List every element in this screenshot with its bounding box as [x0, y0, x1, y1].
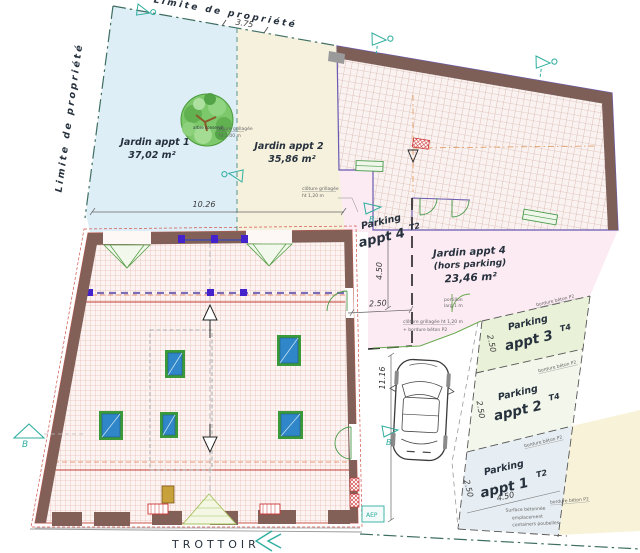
right-wall-gap-1 [345, 288, 354, 318]
annex-chimney [412, 138, 429, 149]
svg-text:larg 1 m: larg 1 m [444, 303, 463, 309]
svg-text:11.16: 11.16 [378, 367, 387, 390]
sidewalk-label: TROTTOIR [171, 538, 260, 551]
svg-text:2.50: 2.50 [369, 299, 387, 309]
velux-2 [277, 335, 301, 366]
main-wall-top-gap-2 [246, 230, 292, 243]
svg-text:35,86 m²: 35,86 m² [268, 154, 316, 165]
velux-4 [160, 412, 178, 438]
section-letter: B [22, 440, 28, 450]
right-wall-gap-2 [349, 424, 358, 460]
car-top-view [386, 358, 455, 461]
street-edge-line [30, 529, 362, 532]
right-chimney-1 [350, 478, 359, 491]
site-plan-drawing: arbre conservé B B B [0, 0, 640, 553]
building-main [31, 226, 362, 528]
svg-text:4.50: 4.50 [375, 262, 384, 280]
top-node-3 [241, 235, 248, 243]
svg-text:Jardin appt 1: Jardin appt 1 [118, 137, 189, 148]
top-node-1 [178, 235, 185, 243]
svg-text:ht 2.00 m: ht 2.00 m [219, 133, 241, 139]
svg-text:Jardin appt 2: Jardin appt 2 [252, 141, 324, 152]
svg-text:ht 1,20 m: ht 1,20 m [302, 193, 324, 199]
boundary-bottom [360, 534, 640, 549]
roof-node-3 [240, 289, 247, 296]
svg-text:37,02 m²: 37,02 m² [128, 150, 176, 161]
svg-text:clôture grillagée: clôture grillagée [216, 125, 253, 132]
vent-box-1 [148, 504, 168, 514]
svg-text:+ bordure béton P2: + bordure béton P2 [403, 326, 447, 333]
velux-5 [278, 411, 303, 439]
aep-label: AEP [366, 512, 378, 519]
roof-node-2 [207, 289, 214, 296]
aep-box: AEP [362, 506, 384, 522]
meter-box [162, 486, 174, 503]
boundary-label-left: Limite de propriété [54, 42, 86, 193]
vent-box-2 [260, 504, 280, 514]
svg-text:10.26: 10.26 [193, 200, 216, 209]
svg-text:portillon: portillon [444, 297, 463, 303]
velux-3 [99, 411, 123, 440]
main-wall-top-gap-1 [103, 231, 151, 244]
top-node-2 [211, 235, 218, 243]
annex-window-marker-1 [356, 161, 383, 172]
svg-text:clôture grillagée: clôture grillagée [302, 185, 339, 192]
svg-text:clôture grillagée ht 1,20 m: clôture grillagée ht 1,20 m [403, 318, 463, 325]
velux-1 [165, 350, 185, 378]
section-flag-icon-3 [533, 56, 557, 79]
right-chimney-2 [350, 494, 359, 507]
site-plan-canvas: arbre conservé B B B [0, 0, 640, 553]
